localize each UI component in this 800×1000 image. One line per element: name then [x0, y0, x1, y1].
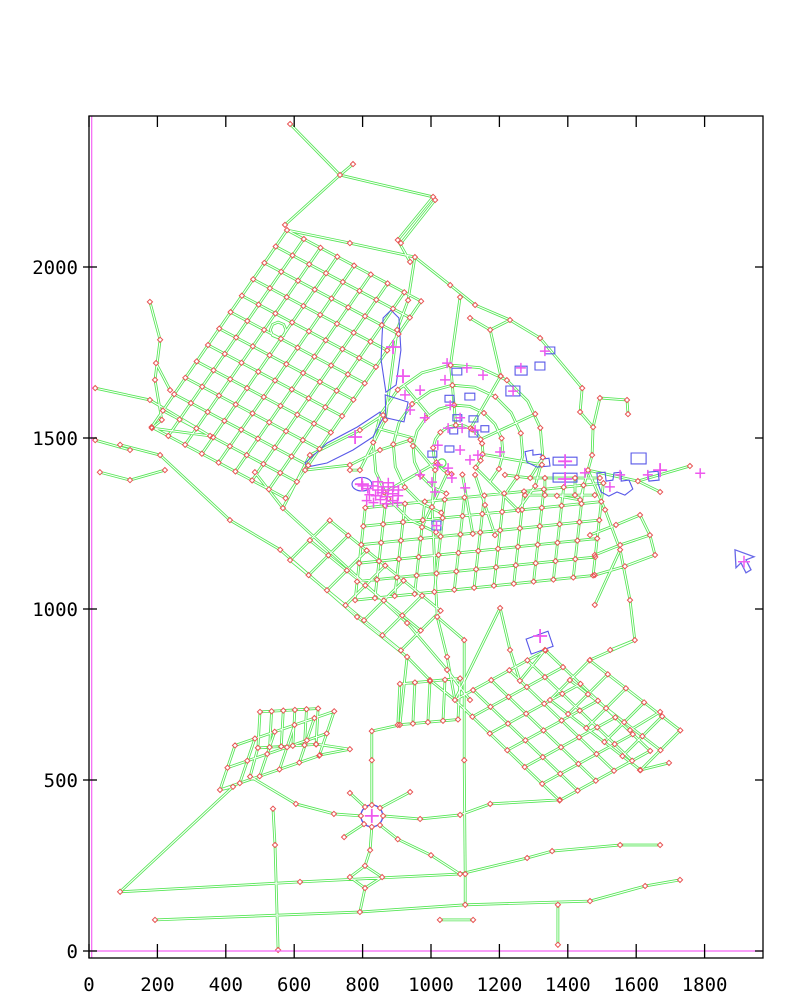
- x-tick-label: 1800: [682, 974, 728, 996]
- x-tick-label: 800: [345, 974, 379, 996]
- x-tick-label: 1600: [613, 974, 659, 996]
- map-plot-canvas: 0200400600800100012001400160018000500100…: [0, 0, 800, 1000]
- mouse-cursor-icon: [735, 550, 754, 573]
- x-tick-label: 400: [209, 974, 243, 996]
- road-network-core: [95, 124, 690, 950]
- y-tick-label: 500: [44, 770, 78, 792]
- x-tick-label: 200: [140, 974, 174, 996]
- y-tick-label: 0: [67, 941, 78, 963]
- x-tick-label: 0: [83, 974, 94, 996]
- y-tick-label: 1000: [32, 599, 78, 621]
- x-tick-label: 600: [277, 974, 311, 996]
- road-network-casing: [95, 124, 690, 950]
- junction-node-markers: [93, 121, 693, 952]
- screenshot-root: 0200400600800100012001400160018000500100…: [0, 0, 800, 1000]
- x-tick-label: 1200: [477, 974, 523, 996]
- x-tick-label: 1400: [545, 974, 591, 996]
- y-tick-label: 1500: [32, 428, 78, 450]
- network-layer: [93, 121, 706, 952]
- y-tick-label: 2000: [32, 257, 78, 279]
- x-tick-label: 1000: [408, 974, 454, 996]
